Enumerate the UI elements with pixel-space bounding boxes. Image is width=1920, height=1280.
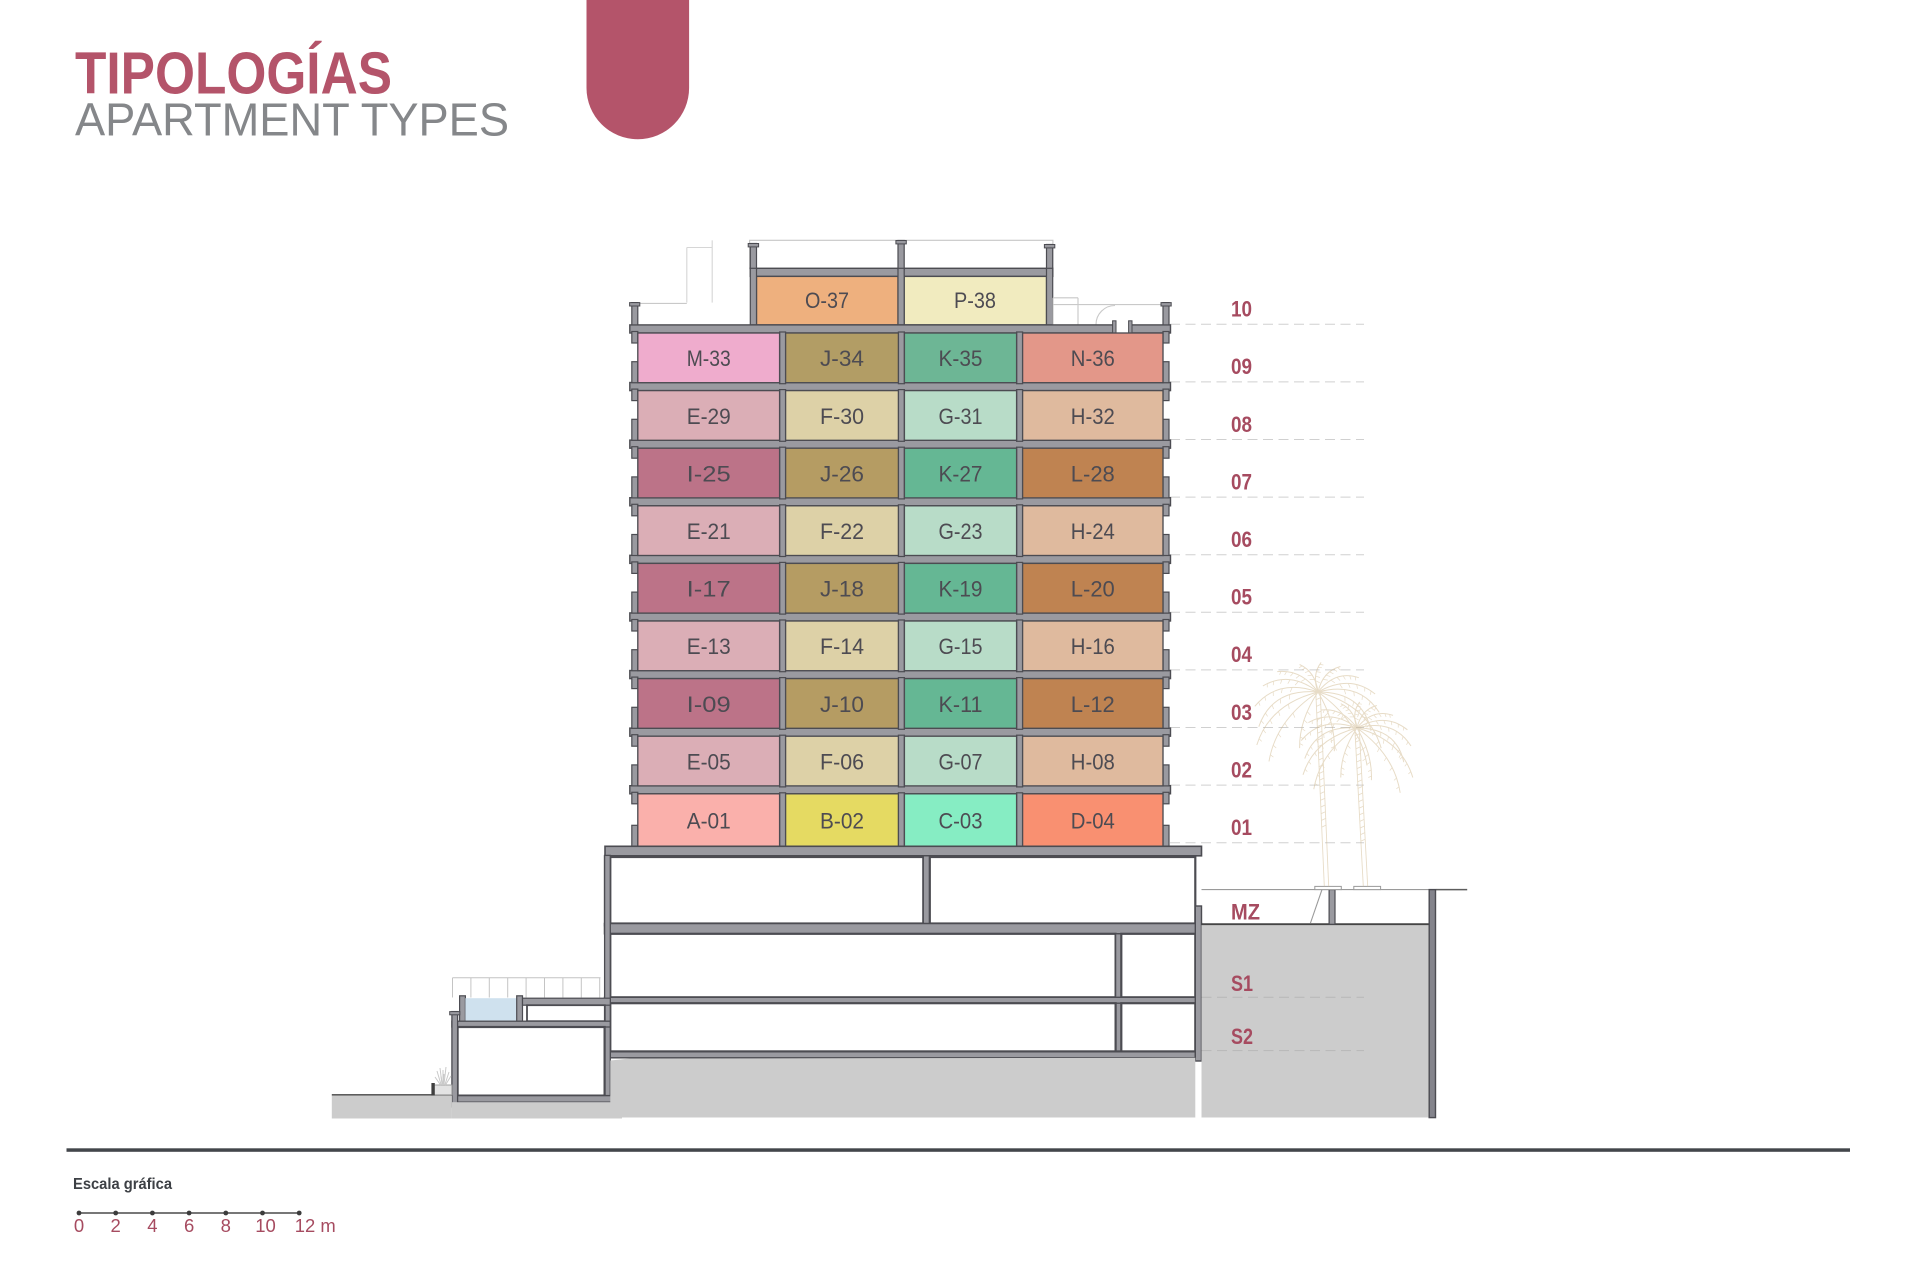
svg-text:K-27: K-27 (939, 461, 983, 486)
svg-text:G-07: G-07 (939, 749, 983, 774)
svg-text:G-31: G-31 (939, 404, 983, 429)
svg-text:S2: S2 (1231, 1024, 1253, 1049)
svg-text:I-25: I-25 (687, 461, 731, 486)
svg-text:I-17: I-17 (687, 577, 731, 602)
svg-text:K-35: K-35 (939, 346, 983, 371)
svg-text:10: 10 (1231, 297, 1252, 322)
svg-text:I-09: I-09 (687, 692, 731, 717)
svg-text:J-34: J-34 (820, 346, 864, 371)
svg-text:N-36: N-36 (1071, 346, 1115, 371)
svg-text:06: 06 (1231, 527, 1252, 552)
svg-text:02: 02 (1231, 758, 1252, 783)
svg-text:E-05: E-05 (687, 749, 731, 774)
svg-text:03: 03 (1231, 700, 1252, 725)
svg-text:Escala gráfica: Escala gráfica (73, 1176, 172, 1193)
svg-text:P-38: P-38 (954, 288, 996, 313)
svg-text:2: 2 (111, 1215, 121, 1236)
svg-text:MZ: MZ (1231, 900, 1260, 925)
svg-text:L-12: L-12 (1071, 692, 1115, 717)
svg-text:A-01: A-01 (687, 808, 731, 833)
svg-text:M-33: M-33 (687, 346, 731, 371)
svg-text:08: 08 (1231, 412, 1252, 437)
svg-text:F-30: F-30 (820, 404, 864, 429)
svg-text:E-13: E-13 (687, 634, 731, 659)
svg-text:H-32: H-32 (1071, 404, 1115, 429)
svg-text:07: 07 (1231, 469, 1252, 494)
svg-text:09: 09 (1231, 354, 1252, 379)
svg-text:G-23: G-23 (939, 519, 983, 544)
svg-text:10: 10 (255, 1215, 276, 1236)
svg-text:H-08: H-08 (1071, 749, 1115, 774)
svg-text:APARTMENT TYPES: APARTMENT TYPES (75, 94, 509, 146)
svg-text:04: 04 (1231, 642, 1252, 667)
svg-text:05: 05 (1231, 585, 1252, 610)
svg-text:E-21: E-21 (687, 519, 731, 544)
svg-text:L-20: L-20 (1071, 577, 1115, 602)
svg-text:8: 8 (221, 1215, 231, 1236)
svg-text:12 m: 12 m (295, 1215, 336, 1236)
svg-text:S1: S1 (1231, 971, 1253, 996)
svg-text:F-14: F-14 (820, 634, 864, 659)
svg-text:L-28: L-28 (1071, 461, 1115, 486)
svg-text:J-18: J-18 (820, 577, 864, 602)
svg-text:O-37: O-37 (805, 288, 849, 313)
svg-text:0: 0 (74, 1215, 84, 1236)
svg-text:G-15: G-15 (939, 634, 983, 659)
svg-text:B-02: B-02 (820, 808, 864, 833)
svg-text:E-29: E-29 (687, 404, 731, 429)
svg-text:F-22: F-22 (820, 519, 864, 544)
svg-text:J-10: J-10 (820, 692, 864, 717)
svg-text:K-19: K-19 (939, 577, 983, 602)
svg-text:4: 4 (147, 1215, 157, 1236)
svg-text:K-11: K-11 (939, 692, 983, 717)
svg-text:D-04: D-04 (1071, 808, 1115, 833)
svg-text:F-06: F-06 (820, 749, 864, 774)
svg-text:C-03: C-03 (939, 808, 983, 833)
svg-text:J-26: J-26 (820, 461, 864, 486)
svg-text:H-24: H-24 (1071, 519, 1115, 544)
svg-text:H-16: H-16 (1071, 634, 1115, 659)
svg-text:01: 01 (1231, 815, 1252, 840)
svg-text:6: 6 (184, 1215, 194, 1236)
